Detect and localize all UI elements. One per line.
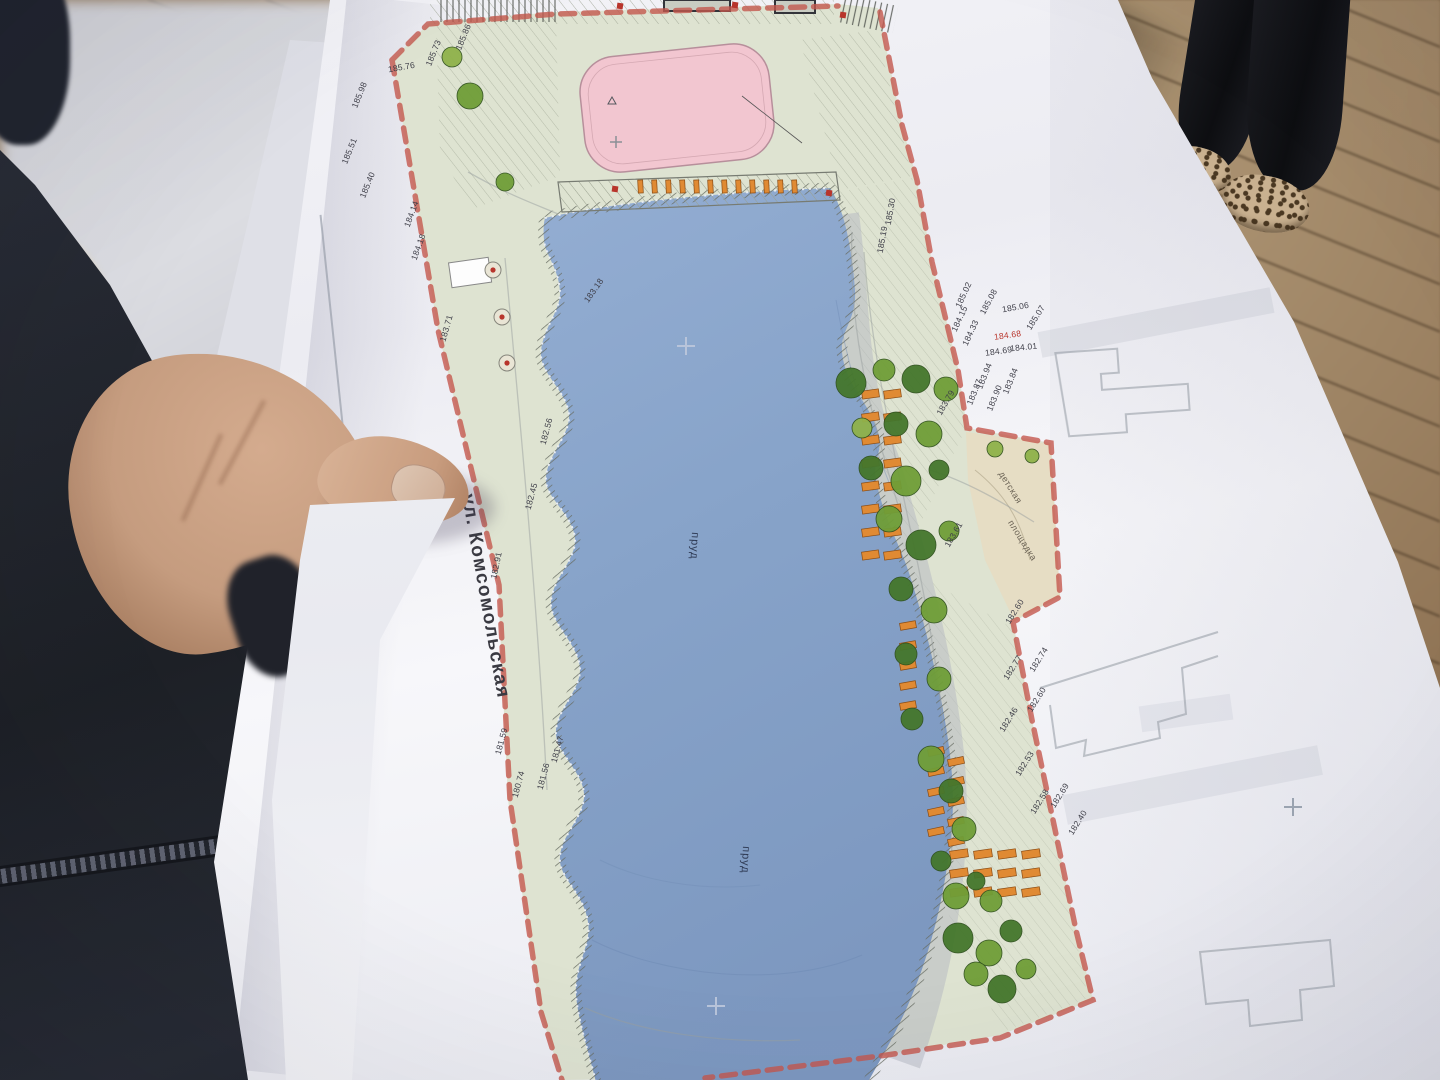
manhole-dot [504,360,509,365]
elevation-label: 183.84 [1000,366,1019,395]
tree-symbol [836,368,866,398]
tree-symbol [889,577,913,601]
tree-symbol [976,940,1002,966]
tree-symbol [876,506,902,532]
elevation-label: 185.08 [978,287,1000,316]
red-square-marker [612,186,619,193]
bench-symbol [708,180,714,193]
tree-symbol [891,466,921,496]
elevation-label: 184.69 [984,344,1012,358]
elevation-label: 184.68 [993,328,1021,342]
margin-road [1040,300,1272,345]
bench-symbol [638,180,644,193]
tree-symbol [943,883,969,909]
tree-symbol [943,923,973,953]
bench-symbol [778,180,784,193]
bench-symbol [652,180,658,193]
tree-symbol [1000,920,1022,942]
elevation-label: 183.87 [964,377,983,406]
margin-road [1065,760,1320,810]
bench-symbol [722,180,728,193]
tree-symbol [859,456,883,480]
red-square-marker [617,3,624,10]
tree-symbol [901,708,923,730]
tree-symbol [1025,449,1039,463]
bench-symbol [680,180,686,193]
elevation-label: 184.33 [960,318,981,347]
building-outlines [1040,344,1334,1026]
tree-symbol [939,779,963,803]
elevation-label: 185.98 [349,80,368,109]
tree-symbol [921,597,947,623]
sports-rink [576,40,777,175]
bench-symbol [736,180,742,193]
tree-symbol [1016,959,1036,979]
tree-symbol [987,441,1003,457]
red-square-marker [840,12,847,19]
tree-symbol [964,962,988,986]
tree-symbol [884,412,908,436]
elevation-label: 185.40 [357,170,376,199]
tree-symbol [980,890,1002,912]
tree-symbol [902,365,930,393]
bench-symbol [792,180,798,193]
red-square-marker [732,2,739,9]
tree-symbol [906,530,936,560]
tree-symbol [931,851,951,871]
bench-symbol [666,180,672,193]
tree-symbol [916,421,942,447]
tree-symbol [852,418,872,438]
tree-symbol [967,872,985,890]
tree-symbol [952,817,976,841]
elevation-label: 184.01 [1010,341,1038,354]
tree-symbol [918,746,944,772]
red-square-marker [826,190,833,197]
pond-label: пруд [739,846,752,874]
bench-symbol [694,180,700,193]
elevation-label: 185.02 [953,280,974,309]
tree-symbol [988,975,1016,1003]
pond-label: пруд [688,532,701,560]
tree-symbol [929,460,949,480]
elevation-label: 185.51 [339,136,358,165]
tree-symbol [927,667,951,691]
tree-symbol [457,83,483,109]
manhole-dot [499,314,504,319]
tree-symbol [873,359,895,381]
photo-stage: ул. Комсомольская пруд пруд детская площ… [0,0,1440,1080]
bench-symbol [764,180,770,193]
elevation-label: 185.06 [1001,300,1030,315]
tree-symbol [895,643,917,665]
bench-symbol [750,180,756,193]
manhole-dot [490,267,495,272]
elevation-label: 182.74 [1027,645,1050,673]
tree-symbol [496,173,514,191]
